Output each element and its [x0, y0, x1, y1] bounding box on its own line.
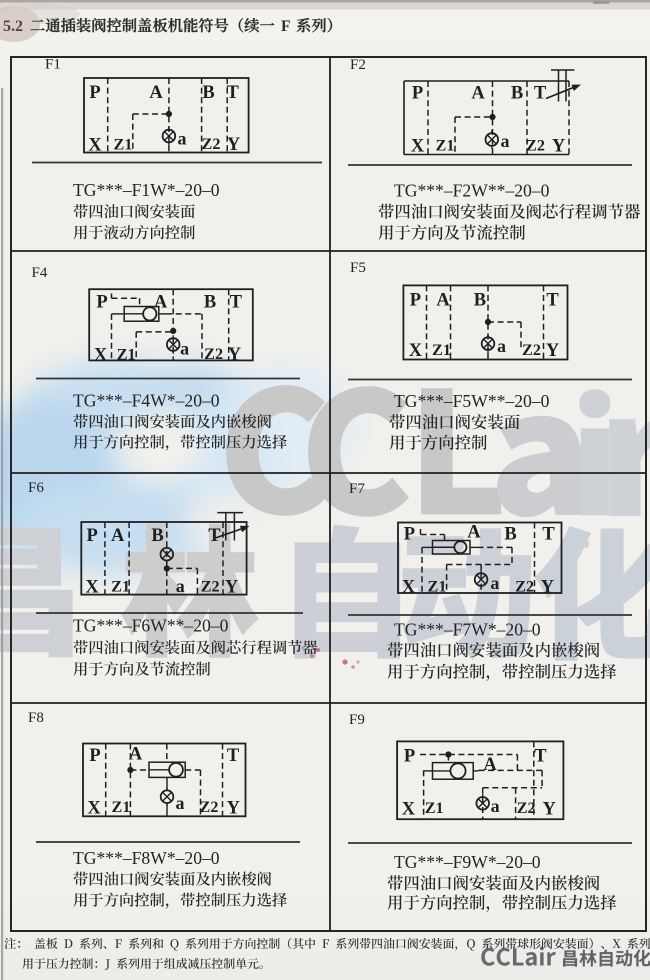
- svg-text:A: A: [467, 522, 481, 542]
- svg-text:Z1: Z1: [111, 578, 130, 596]
- svg-text:F: F: [281, 18, 290, 35]
- svg-text:A: A: [111, 526, 125, 546]
- svg-text:Z1: Z1: [432, 341, 451, 359]
- svg-text:P: P: [96, 292, 107, 312]
- svg-text:TG***–F8W*–20–0: TG***–F8W*–20–0: [73, 848, 220, 868]
- svg-text:TG***–F4W*–20–0: TG***–F4W*–20–0: [73, 391, 220, 411]
- svg-text:Z2: Z2: [515, 578, 534, 596]
- svg-text:5.2: 5.2: [3, 18, 23, 35]
- svg-text:TG***–F5W**–20–0: TG***–F5W**–20–0: [394, 391, 550, 411]
- svg-text:a: a: [176, 793, 185, 813]
- svg-text:a: a: [180, 339, 189, 359]
- svg-text:T: T: [542, 524, 555, 544]
- svg-text:X: X: [402, 577, 416, 597]
- svg-text:Z1: Z1: [436, 137, 455, 155]
- svg-text:X: X: [402, 799, 416, 819]
- svg-text:P: P: [404, 746, 415, 766]
- svg-text:B: B: [151, 526, 163, 546]
- svg-text:F4: F4: [32, 265, 48, 281]
- svg-text:F7: F7: [349, 481, 365, 497]
- svg-text:T: T: [534, 83, 547, 103]
- svg-text:P: P: [86, 526, 97, 546]
- svg-text:Z2: Z2: [204, 345, 223, 363]
- svg-text:A: A: [154, 292, 168, 312]
- svg-text:TG***–F2W**–20–0: TG***–F2W**–20–0: [394, 181, 550, 201]
- svg-text:Z2: Z2: [200, 798, 219, 816]
- svg-text:Z1: Z1: [112, 798, 131, 816]
- svg-text:P: P: [89, 746, 100, 766]
- svg-text:a: a: [178, 129, 187, 149]
- svg-text:A: A: [436, 290, 450, 310]
- svg-text:F5: F5: [350, 260, 366, 276]
- svg-text:X: X: [94, 345, 108, 365]
- svg-text:Z2: Z2: [201, 578, 220, 596]
- svg-text:Y: Y: [228, 345, 242, 365]
- svg-text:P: P: [404, 524, 415, 544]
- svg-text:X: X: [411, 136, 425, 156]
- svg-text:F8: F8: [28, 710, 44, 726]
- svg-text:X: X: [409, 341, 423, 361]
- svg-text:T: T: [230, 292, 243, 312]
- svg-text:B: B: [204, 292, 216, 312]
- svg-text:B: B: [474, 290, 486, 310]
- svg-text:A: A: [149, 83, 163, 103]
- svg-text:X: X: [85, 577, 99, 597]
- svg-text:TG***–F1W*–20–0: TG***–F1W*–20–0: [73, 180, 220, 200]
- svg-text:B: B: [202, 83, 214, 103]
- svg-text:TG***–F6W**–20–0: TG***–F6W**–20–0: [73, 616, 229, 636]
- svg-text:F1: F1: [45, 57, 61, 73]
- svg-text:T: T: [534, 746, 547, 766]
- svg-text:T: T: [208, 526, 221, 546]
- svg-text:Y: Y: [227, 135, 241, 155]
- svg-text:A: A: [129, 744, 143, 764]
- svg-text:TG***–F7W*–20–0: TG***–F7W*–20–0: [394, 620, 541, 640]
- svg-text:Z1: Z1: [117, 346, 136, 364]
- svg-text:Z2: Z2: [202, 135, 221, 153]
- svg-text:F2: F2: [350, 57, 366, 73]
- svg-text:F9: F9: [349, 712, 365, 728]
- svg-text:Z1: Z1: [114, 136, 133, 154]
- svg-text:A: A: [471, 83, 485, 103]
- svg-text:Y: Y: [225, 577, 239, 597]
- svg-text:Y: Y: [546, 341, 560, 361]
- svg-text:Y: Y: [541, 577, 555, 597]
- svg-text:P: P: [410, 290, 421, 310]
- svg-text:T: T: [227, 83, 240, 103]
- svg-text:B: B: [511, 83, 523, 103]
- svg-text:B: B: [504, 524, 516, 544]
- svg-text:a: a: [176, 576, 185, 596]
- svg-text:Y: Y: [543, 799, 557, 819]
- svg-text:Z1: Z1: [428, 578, 447, 596]
- svg-text:Z2: Z2: [522, 341, 541, 359]
- svg-text:P: P: [412, 83, 423, 103]
- svg-text:P: P: [89, 83, 100, 103]
- svg-text:a: a: [497, 336, 506, 356]
- svg-text:a: a: [490, 573, 499, 593]
- svg-text:Y: Y: [552, 136, 566, 156]
- svg-text:A: A: [483, 755, 497, 775]
- svg-text:X: X: [88, 135, 102, 155]
- svg-text:TG***–F9W*–20–0: TG***–F9W*–20–0: [394, 852, 541, 872]
- svg-text:Z2: Z2: [526, 137, 545, 155]
- svg-text:Z2: Z2: [517, 799, 536, 817]
- svg-text:Y: Y: [227, 798, 241, 818]
- svg-text:X: X: [87, 798, 101, 818]
- svg-text:T: T: [227, 746, 240, 766]
- svg-text:a: a: [491, 796, 500, 816]
- svg-text:a: a: [501, 131, 510, 151]
- svg-text:T: T: [546, 290, 559, 310]
- svg-text:Z1: Z1: [425, 799, 444, 817]
- svg-text:F6: F6: [28, 480, 44, 496]
